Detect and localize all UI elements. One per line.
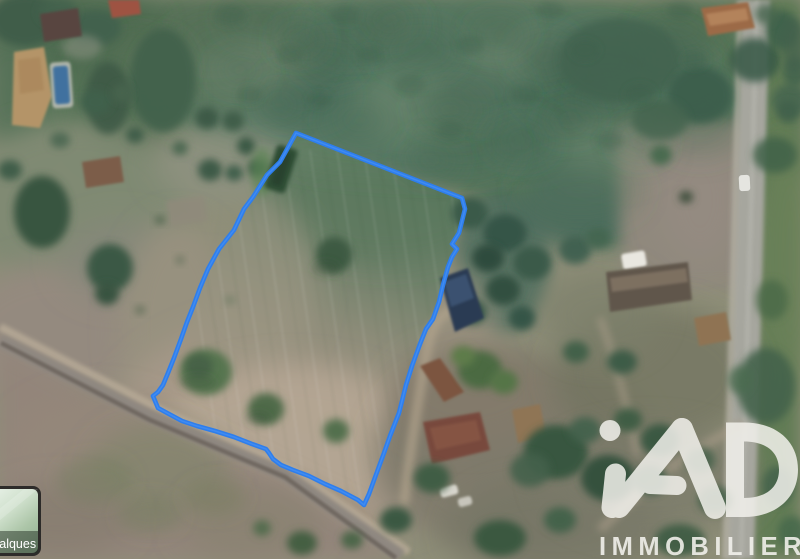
- svg-text:calques: calques: [0, 537, 36, 551]
- svg-text:IMMOBILIER: IMMOBILIER: [599, 533, 800, 559]
